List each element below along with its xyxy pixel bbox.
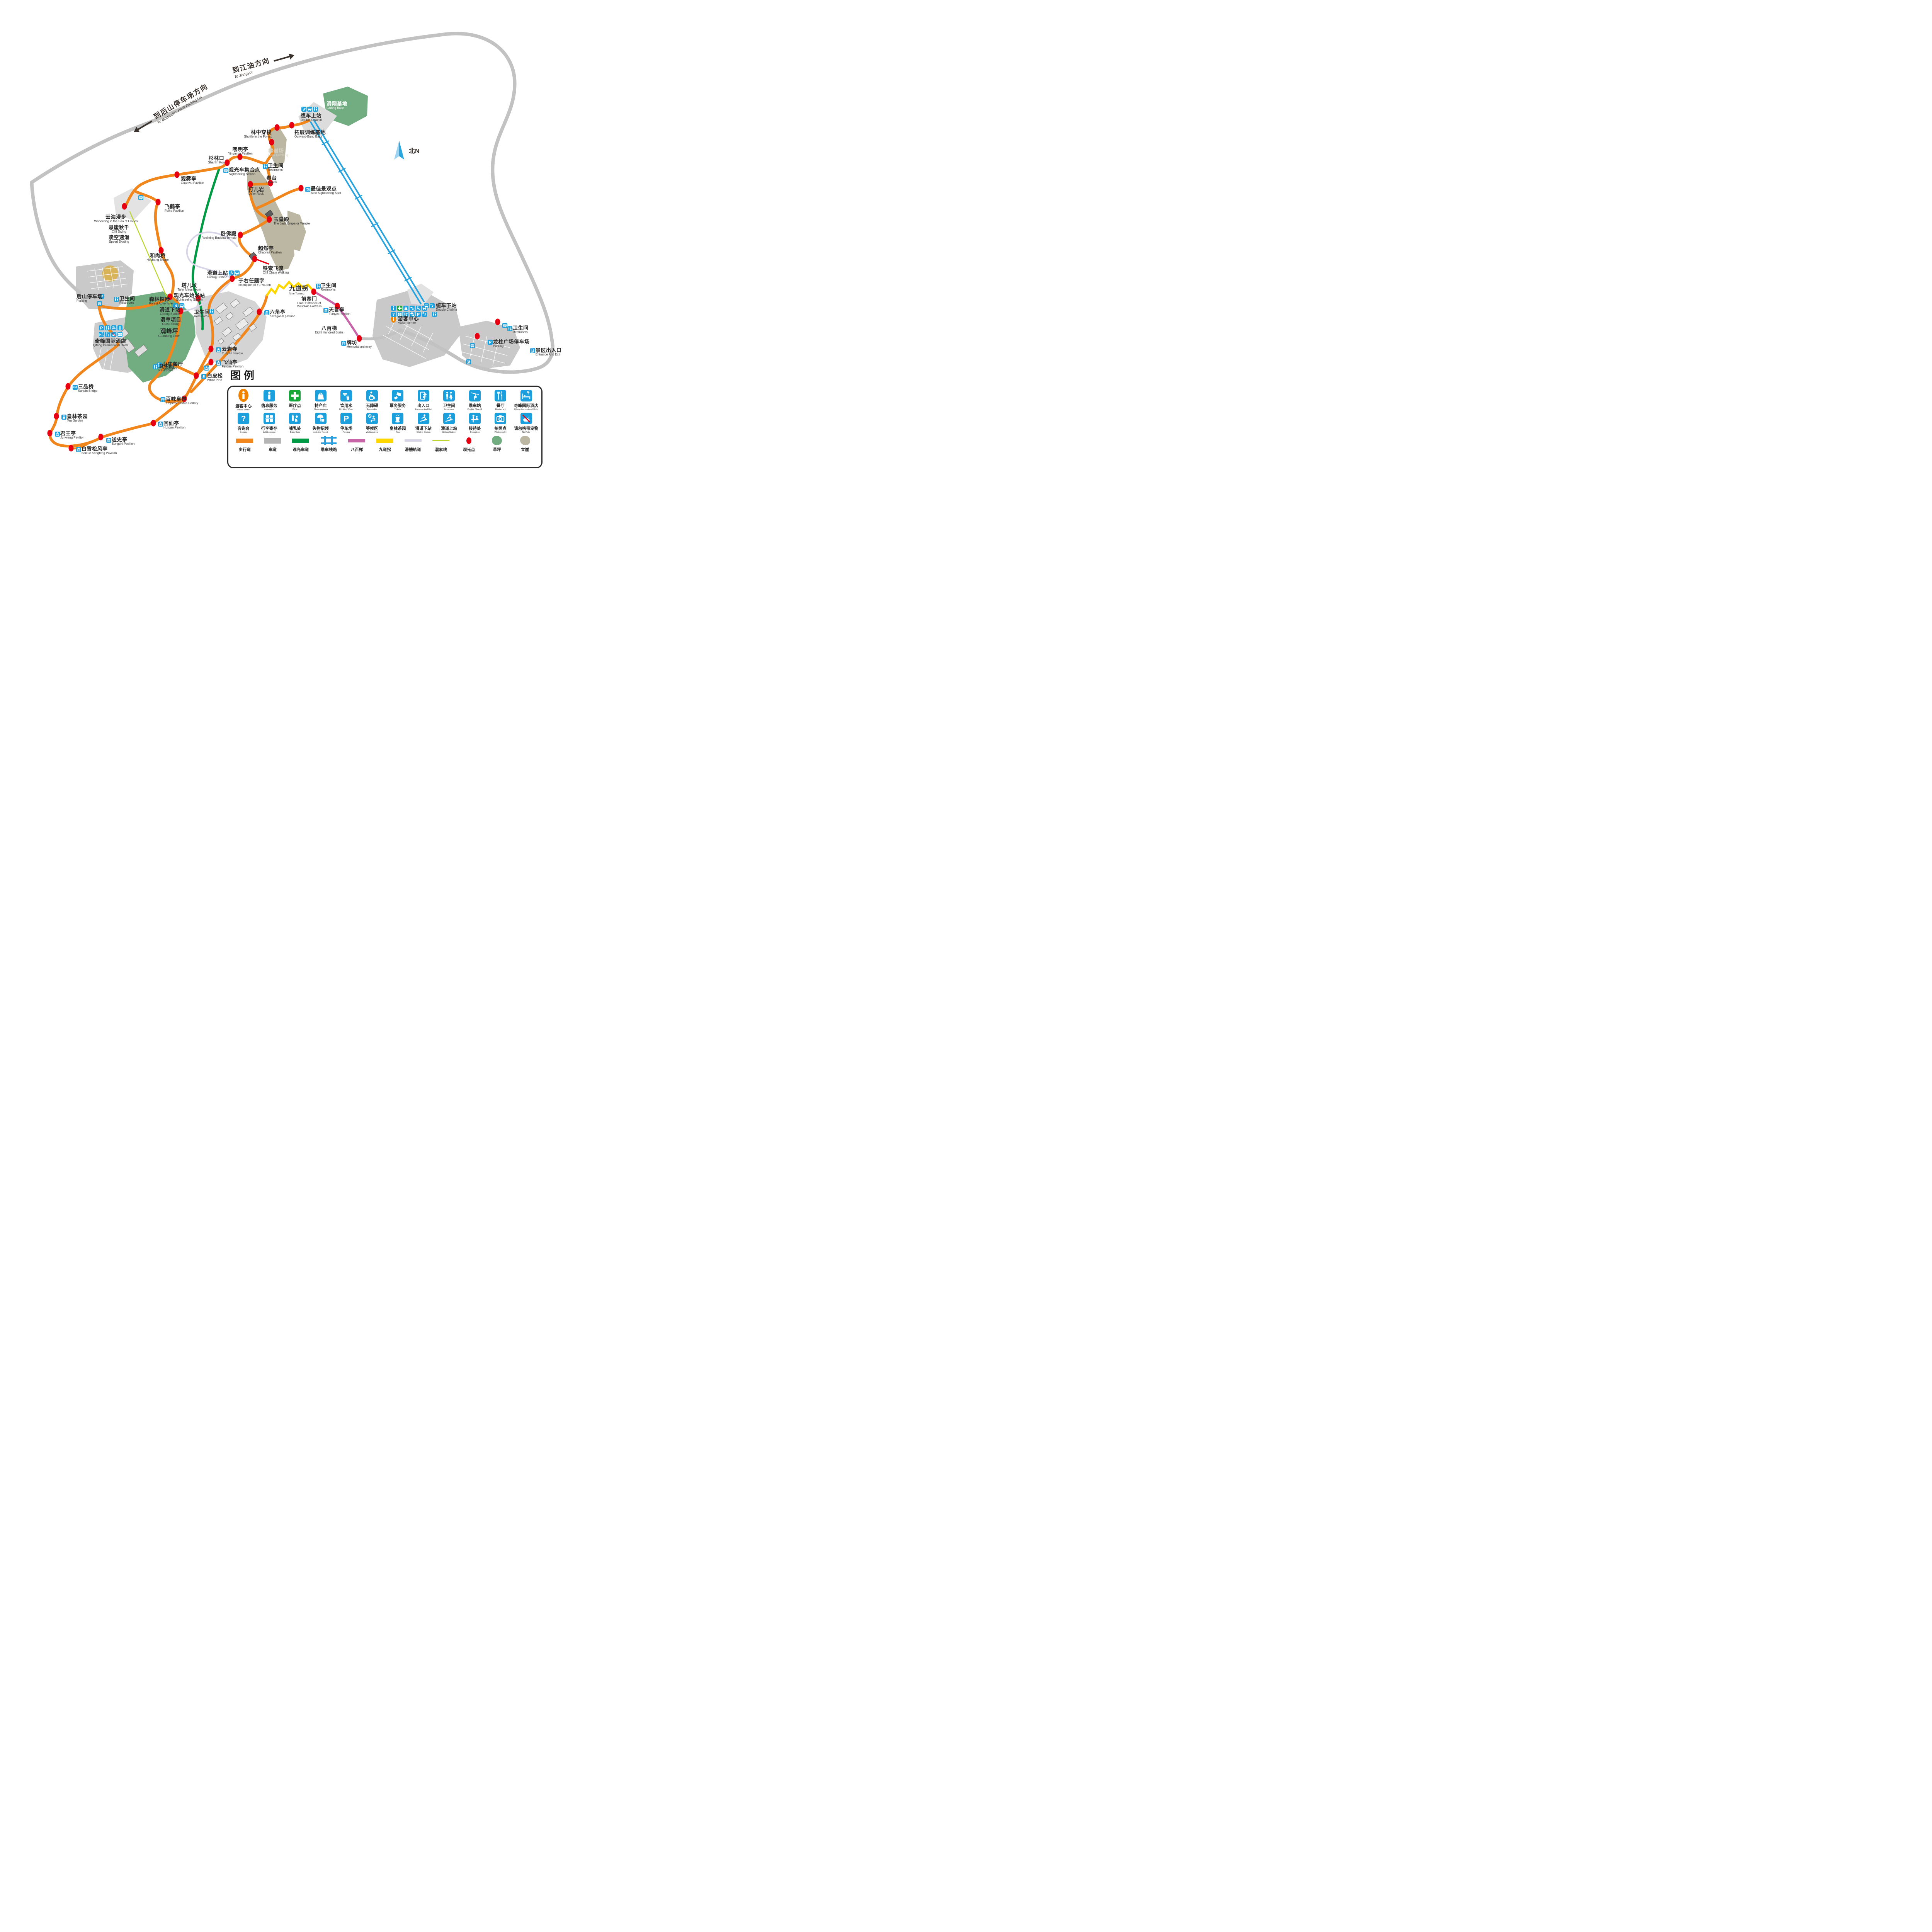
legend-item-tea: 皇林茶园Tea [385, 413, 411, 434]
bus-icon[interactable] [502, 323, 507, 328]
gliding-station-bottom-name-cn: 滑道下站 [160, 307, 180, 313]
legend-label-en: Drinking Water [339, 408, 353, 411]
chairlift-icon[interactable] [301, 107, 306, 112]
heshang-bridge-name-cn: 和尚桥 [146, 253, 168, 259]
legend-item-enquiry: 咨询台Enquiry [231, 413, 257, 434]
nine-swatch [376, 439, 393, 443]
legend-line-label: 观光点 [463, 447, 475, 452]
gliding-station-top-dot[interactable] [230, 276, 235, 282]
cablecar-top-station-name-cn: 缆车上站 [301, 113, 322, 119]
sanpin-bridge-label: 三品桥Sanpin Bridge [78, 384, 97, 393]
visitor-center-name-en: Visitor center [398, 321, 419, 325]
feixian-pavilion-dot[interactable] [209, 359, 214, 366]
lostfound-icon [315, 413, 327, 424]
gliding-base-label: 滑翔基地Gliding Base [327, 101, 347, 110]
restrooms-lawn-label: 卫生间Restrooms [158, 364, 174, 372]
cliff-swatch [520, 436, 530, 445]
legend-item-qifeng-international-hotel: 奇峰国际酒店Qifeng International Hotel [514, 390, 539, 411]
junwang-pavilion-label: 君王亭Junwang Pavilion [60, 431, 84, 439]
wc-icon[interactable] [313, 107, 318, 112]
wc-icon[interactable] [432, 312, 437, 317]
hexagonal-pavilion-name-en: hexagonal pavilion [270, 315, 295, 318]
pavilion-icon[interactable] [264, 310, 269, 315]
scenic-entrance-exit-label: 景区出入口Entrance And Exit [536, 348, 562, 356]
rock-climbing-label: 攀岩场Rock Climbing [268, 148, 288, 157]
legend-item-no-pets: 请勿携带宠物No Pets [514, 413, 539, 434]
best-sightseeing-spot-label: 最佳景观点Best Sightseeing Spot [311, 186, 341, 195]
daer-rock-name-cn: 打儿岩 [248, 187, 264, 192]
bus-icon[interactable] [470, 343, 475, 348]
legend-label-en: Visitor center [237, 409, 250, 411]
restrooms-north-label: 卫生间Restrooms [268, 163, 284, 172]
legend-label-en: Shopping Area [314, 408, 328, 411]
reclining-buddha-temple-dot[interactable] [238, 232, 243, 238]
bed-icon [520, 390, 532, 401]
shuttle-in-the-forest-name-en: Shuttle in the Forest [244, 135, 272, 138]
tianyin-pavilion-name-cn: 天音亭 [329, 307, 350, 313]
qifeng-international-hotel-name-en: Qifeng International Hotel [93, 344, 128, 347]
restrooms-back-mountain-label: 卫生间Restrooms [119, 296, 135, 304]
parking-icon[interactable] [99, 325, 104, 330]
legend-label-en: No Pets [522, 431, 530, 434]
legend-label-en: Accessible [367, 408, 377, 411]
legend-label-en: Tickets [395, 408, 401, 411]
glide-icon [418, 413, 429, 424]
legend-label-en: Waiting Area [366, 431, 378, 434]
bus-icon[interactable] [235, 270, 240, 276]
legend-line-road: 车道 [259, 436, 287, 452]
chuntai-label: 春台Chuntai [266, 175, 277, 184]
cliff-swing-name-en: Cliff Swing [109, 230, 129, 233]
legend-line-label: 观光车道 [293, 447, 309, 452]
legend-label-en: Left Luggage [263, 431, 276, 434]
visitor-center-name-cn: 游客中心 [398, 316, 419, 321]
wc-icon[interactable] [209, 309, 214, 314]
restrooms-yunyan-label: 卫生间Restrooms [194, 310, 210, 318]
legend-item-reception: 接待处Reception [462, 413, 488, 434]
legend-label-cn: 餐厅 [497, 403, 505, 408]
gliding-base-name-cn: 滑翔基地 [327, 101, 347, 107]
speed-skating-name-en: Speed Skating [109, 240, 129, 243]
speed-skating-name-cn: 凌空速滑 [109, 235, 129, 240]
tea-garden-dot[interactable] [54, 413, 59, 420]
restrooms-yunyan-name-en: Restrooms [194, 315, 210, 318]
heshang-bridge-label: 和尚桥Heshang Bridge [146, 253, 168, 262]
legend-item-parking: 停车场Parking [333, 413, 359, 434]
bag-icon[interactable] [403, 306, 408, 311]
road-spot-1-dot[interactable] [495, 319, 500, 325]
restrooms-back-mountain-name-en: Restrooms [119, 301, 135, 304]
reclining-buddha-temple-label: 卧佛殿Reclining Buddha Temple [201, 231, 236, 240]
feihe-pavilion-label: 飞鹤亭Feihe Pavilion [165, 204, 184, 213]
cablecar-top-station-name-en: Double Chairlift [301, 119, 322, 122]
sanpin-bridge-name-en: Sanpin Bridge [78, 389, 97, 393]
junwang-pavilion-dot[interactable] [48, 430, 53, 437]
legend-label-en: Restrooms [444, 408, 454, 411]
legend-service-row-2: 咨询台Enquiry行李寄存Left Luggage哺乳处Baby Care失物… [231, 413, 539, 434]
legend-line-label: 缆车线路 [321, 447, 337, 452]
legend-item-accessible: 无障碍Accessible [359, 390, 385, 411]
jade-emperor-temple-dot[interactable] [267, 216, 272, 223]
water-icon[interactable] [410, 306, 415, 311]
guanwu-pavilion-name-cn: 观雾亭 [181, 176, 204, 182]
memorial-archway-name-cn: 牌坊 [347, 340, 372, 345]
legend-item-visitor-center: 游客中心Visitor center [231, 390, 257, 411]
guanwu-pavilion-name-en: Guanwu Pavilion [181, 182, 204, 185]
legend-line-label: 滑槽轨道 [405, 447, 421, 452]
archway-icon[interactable] [160, 397, 165, 402]
pavilion-icon[interactable] [323, 308, 328, 313]
baixue-songfeng-pavilion-dot[interactable] [69, 445, 74, 452]
grass-skiing-name-cn: 滑草项目 [160, 317, 181, 323]
tea-icon [392, 413, 403, 424]
legend-item-drinking-water: 饮用水Drinking Water [333, 390, 359, 411]
scenic-entrance-exit-name-en: Entrance And Exit [536, 353, 562, 356]
legend-label-cn: 信息服务 [261, 403, 277, 408]
legend-item-information: 信息服务Information [257, 390, 282, 411]
camera-icon[interactable] [305, 187, 310, 192]
gliding-station-top-label: 滑道上站Gliding Station [207, 270, 228, 279]
legend-label-en: Double Chairlift [468, 408, 482, 411]
jade-emperor-temple-label: 玉皇殿The Jade Emperor Temple [274, 217, 310, 225]
guanfeng-lawn-name-cn: 观峰坪 [158, 328, 180, 335]
rock-climbing-name-cn: 攀岩场 [268, 148, 288, 154]
legend-label-cn: 皇林茶园 [389, 425, 406, 431]
road-swatch [264, 438, 281, 444]
qifeng-international-hotel-name-cn: 奇峰国际酒店 [93, 338, 128, 344]
stairs-swatch [348, 439, 365, 442]
legend-label-cn: 特产店 [315, 403, 327, 408]
pavilion-icon[interactable] [158, 422, 163, 427]
legend-label-cn: 停车场 [340, 425, 353, 431]
north-arrow-icon [393, 140, 406, 161]
taer-mausoleum-label: 塔儿坟Ta'er Mausoleum [178, 283, 201, 291]
huixian-pavilion-label: 回仙亭Huixian Pavilion [163, 421, 185, 429]
legend-label-en: Enquiry [240, 431, 247, 434]
sea-of-clouds-walk-name-cn: 云海漫步 [94, 214, 138, 220]
legend-label-en: Reception [470, 431, 480, 434]
inscription-of-yu-youren-label: 于右任题字Inscription of Yu Youren [238, 278, 271, 287]
legend-label-en: Restaurant [495, 408, 506, 411]
legend-item-entrance-and-exit: 出入口Entrance And Exit [411, 390, 437, 411]
wheelchair-icon [366, 390, 378, 401]
restrooms-yunyan-name-cn: 卫生间 [194, 310, 210, 315]
legend-label-cn: 接待处 [469, 425, 481, 431]
cross-icon[interactable] [397, 306, 402, 311]
archway-icon[interactable] [341, 341, 346, 346]
cablecar-bottom-station-name-en: Double Chairlift [436, 308, 457, 311]
legend-label-en: Tea [396, 431, 400, 434]
door-icon[interactable] [530, 348, 535, 353]
door-icon[interactable] [466, 359, 471, 364]
nine-turning-name-en: Nine Turning [289, 293, 308, 295]
legend-item-gliding-station: 滑道下站Gliding Station [411, 413, 437, 434]
chuntai-name-en: Chuntai [266, 181, 277, 184]
legend-label-cn: 缆车站 [469, 403, 481, 408]
wc-icon[interactable] [114, 297, 119, 302]
emperor-statue-gallery-name-cn: 百味皇林 [166, 396, 198, 402]
junwang-pavilion-name-cn: 君王亭 [60, 431, 84, 436]
sanpin-bridge-dot[interactable] [66, 383, 71, 390]
songshi-pavilion-name-cn: 送史亭 [112, 437, 134, 442]
tea-garden-name-cn: 皇林茶园 [67, 414, 88, 419]
grass-skiing-label: 滑草项目Grass Skiing [160, 317, 181, 326]
legend-label-cn: 滑道下站 [415, 425, 432, 431]
legend-line-label: 溜索线 [435, 447, 447, 452]
wc-icon[interactable] [105, 325, 110, 330]
road-spot-2-dot[interactable] [475, 333, 480, 340]
legend-item-restrooms: 卫生间Restrooms [436, 390, 462, 411]
yingming-pavilion-label: 嘤明亭Yingming Pavilion [228, 147, 252, 155]
info-icon [264, 390, 275, 401]
shuttle-in-the-forest-dot[interactable] [275, 124, 280, 131]
legend-line-label: 步行道 [239, 447, 251, 452]
restrooms-lawn-name-cn: 卫生间 [158, 364, 174, 369]
bus-icon[interactable] [424, 303, 429, 308]
legend-line-walk: 步行道 [231, 436, 259, 452]
legend-line-nine: 九道拐 [371, 436, 399, 452]
best-sightseeing-spot-name-cn: 最佳景观点 [311, 186, 341, 192]
legend-label-cn: 票务服务 [389, 403, 406, 408]
waiting-icon[interactable] [422, 312, 427, 317]
shanlin-kou-name-cn: 杉林口 [208, 156, 224, 161]
feihe-pavilion-dot[interactable] [156, 199, 161, 206]
tianyin-pavilion-name-en: Tianyin Pavilion [329, 313, 350, 316]
visitor-icon [238, 389, 248, 402]
info-icon[interactable] [117, 325, 122, 330]
outward-bund-base-dot[interactable] [289, 122, 294, 129]
sightseeing-meeting-point-name-cn: 观光车集合点 [229, 167, 260, 173]
hexagonal-pavilion-name-cn: 六角亭 [270, 310, 295, 315]
guanfeng-lawn-name-en: Guanfeng Lawn [158, 335, 180, 338]
legend-label-cn: 游客中心 [235, 403, 252, 409]
door-icon [418, 390, 429, 401]
restaurant-icon[interactable] [105, 332, 110, 337]
front-entrance-of-mountain-fortress-name-en: Front Entrance of Mountain Fortress [297, 302, 321, 308]
bus-icon[interactable] [307, 107, 312, 112]
pavilion-icon[interactable] [106, 438, 111, 443]
legend-label-en: Baby Care [290, 431, 300, 434]
shanlin-kou-dot[interactable] [225, 160, 230, 166]
waiting-icon [366, 413, 378, 424]
legend-item-double-chairlift: 缆车站Double Chairlift [462, 390, 488, 411]
cliff-chain-walking-name-en: Cliff Chain Walking [263, 271, 289, 274]
tianyin-pavilion-label: 天音亭Tianyin Pavilion [329, 307, 350, 316]
restaurant-icon [495, 390, 506, 401]
legend-line-label: 九道拐 [379, 447, 391, 452]
eight-hundred-stairs-name-en: Eight Hundred Stairs [315, 331, 344, 334]
legend-item-gliding-station: 滑道上站Gliding Station [436, 413, 462, 434]
legend-line-zip: 溜索线 [427, 436, 455, 452]
pavilion-icon[interactable] [55, 432, 60, 437]
legend-item-waiting-area: 等候区Waiting Area [359, 413, 385, 434]
cliff-chain-walking-label: 铁索飞渡Cliff Chain Walking [263, 266, 289, 274]
bus-icon[interactable] [138, 195, 143, 200]
wheelchair-icon[interactable] [416, 306, 421, 311]
right-arrow-icon [274, 55, 290, 61]
sanpin-bridge-name-cn: 三品桥 [78, 384, 97, 389]
gliding-station-bottom-name-en: Gliding Station [160, 313, 180, 316]
songshi-pavilion-dot[interactable] [99, 434, 104, 440]
daer-rock-name-en: Da'er Rock [248, 192, 264, 196]
bridge-icon[interactable] [73, 385, 78, 390]
legend-label-cn: 哺乳处 [289, 425, 301, 431]
sightseeing-departure-station-name-en: Sightseeing Station [173, 298, 205, 301]
forest-adventure-name-en: Forest Adventure [149, 302, 173, 305]
yunyan-temple-dot[interactable] [209, 346, 214, 352]
baixue-songfeng-pavilion-name-cn: 白雪松风亭 [82, 446, 117, 452]
huixian-pavilion-name-cn: 回仙亭 [163, 421, 185, 426]
baixue-songfeng-pavilion-name-en: Baixue Songfeng Pavilion [82, 452, 117, 455]
inscription-of-yu-youren-name-cn: 于右任题字 [238, 278, 271, 284]
cliff-swing-label: 悬崖秋千Cliff Swing [109, 225, 129, 233]
shuttle-in-the-forest-label: 林中穿梭Shuttle in the Forest [244, 130, 272, 138]
best-sightseeing-spot-name-en: Best Sightseeing Spot [311, 192, 341, 195]
taer-mausoleum-name-en: Ta'er Mausoleum [178, 288, 201, 291]
memorial-archway-name-en: Memorial archway [347, 345, 372, 349]
longzhu-square-parking-label: 龙柱广场停车场Parking [493, 339, 530, 348]
yingming-pavilion-name-en: Yingming Pavilion [228, 152, 252, 155]
rock-climbing-name-en: Rock Climbing [268, 154, 288, 157]
legend-label-cn: 请勿携带宠物 [514, 425, 538, 431]
front-entrance-of-mountain-fortress-name-cn: 前寨门 [297, 296, 321, 302]
bag-icon [315, 390, 327, 401]
wc-icon[interactable] [316, 284, 321, 289]
pavilion-icon[interactable] [76, 447, 81, 452]
wc-icon[interactable] [507, 326, 512, 331]
qifeng-international-hotel-label: 奇峰国际酒店Qifeng International Hotel [93, 338, 128, 347]
bed-icon[interactable] [99, 332, 104, 337]
sea-of-clouds-walk-dot[interactable] [122, 203, 127, 210]
parking-icon[interactable] [488, 340, 493, 345]
legend-label-cn: 无障碍 [366, 403, 378, 408]
legend-line-busline: 观光车道 [287, 436, 315, 452]
nine-turning-label: 九道拐Nine Turning [289, 286, 308, 295]
legend-line-label: 车道 [269, 447, 277, 452]
nine-turning-name-cn: 九道拐 [289, 286, 308, 293]
chairlift-icon[interactable] [430, 303, 435, 308]
cable-swatch [321, 437, 337, 444]
white-pine-label: 白皮松White Pine [207, 373, 223, 382]
outward-bund-base-label: 拓展训练基地Outward-Bund Base [294, 130, 326, 138]
guanwu-pavilion-label: 观雾亭Guanwu Pavilion [181, 176, 204, 185]
legend-item-baby-care: 哺乳处Baby Care [282, 413, 308, 434]
lawn-swatch [492, 436, 502, 445]
pine-icon[interactable] [201, 374, 206, 379]
legend-label-en: Photography [495, 431, 507, 434]
cliff-swing-name-cn: 悬崖秋千 [109, 225, 129, 230]
bus-icon[interactable] [223, 168, 228, 173]
pavilion-icon[interactable] [216, 361, 221, 366]
restrooms-nine-turning-label: 卫生间Restrooms [321, 283, 337, 291]
legend-line-cable: 缆车线路 [315, 436, 343, 452]
restrooms-longzhu-name-en: Restrooms [513, 331, 529, 334]
chaoran-pavilion-dot[interactable] [252, 256, 257, 262]
legend-line-stairs: 八百梯 [343, 436, 371, 452]
spot-swatch [466, 437, 471, 444]
chaoran-pavilion-name-cn: 超然亭 [258, 246, 282, 251]
legend-label-cn: 医疗点 [289, 403, 301, 408]
camera-icon[interactable] [204, 366, 209, 371]
guanwu-pavilion-dot[interactable] [175, 172, 180, 178]
yingming-pavilion-name-cn: 嘤明亭 [228, 147, 252, 152]
gliding-station-top-name-en: Gliding Station [207, 276, 228, 279]
wc-icon[interactable] [153, 364, 158, 369]
chairlift-icon [469, 390, 481, 401]
nopets-icon [520, 413, 532, 424]
compass: 北N [393, 140, 420, 161]
legend-title: 图例 [230, 367, 257, 382]
songshi-pavilion-name-en: Songshi Pavilion [112, 442, 134, 446]
chute-swatch [405, 439, 422, 442]
restrooms-back-mountain-name-cn: 卫生间 [119, 296, 135, 301]
sea-of-clouds-walk-name-en: Wondering in the Sea of Clouds [94, 220, 138, 223]
back-mountain-parking-name-cn: 后山停车场 [77, 294, 103, 299]
restrooms-longzhu-name-cn: 卫生间 [513, 325, 529, 331]
info-icon[interactable] [391, 306, 396, 311]
legend-label-cn: 奇峰国际酒店 [514, 403, 538, 408]
legend-label-en: Gliding Station [442, 431, 456, 434]
sightseeing-meeting-point-label: 观光车集合点Sightseeing Station [229, 167, 260, 176]
legend-line-label: 草坪 [493, 447, 501, 452]
restrooms-nine-turning-name-en: Restrooms [321, 288, 337, 291]
zip-swatch [432, 440, 449, 441]
rock-climbing-dot[interactable] [269, 139, 274, 146]
tea-icon[interactable] [61, 415, 66, 420]
best-sightseeing-spot-dot[interactable] [299, 185, 304, 192]
question-icon[interactable] [391, 312, 396, 317]
legend-line-label: 立崖 [521, 447, 529, 452]
shanlin-kou-label: 杉林口Shanlin Kou [208, 156, 224, 164]
longzhu-square-parking-name-cn: 龙柱广场停车场 [493, 339, 530, 345]
camera-icon [495, 413, 506, 424]
huixian-pavilion-dot[interactable] [151, 420, 156, 427]
temple-icon[interactable] [216, 347, 221, 352]
hexagonal-pavilion-dot[interactable] [257, 309, 262, 315]
legend-label-cn: 滑道上站 [441, 425, 457, 431]
water-icon [340, 390, 352, 401]
glide-icon[interactable] [229, 270, 234, 276]
legend-line-spot: 观光点 [455, 436, 483, 452]
tea-garden-name-en: Tea Garden [67, 419, 88, 422]
legend-label-en: Gliding Station [417, 431, 430, 434]
wc-icon[interactable] [263, 164, 268, 169]
legend-label-cn: 拍照点 [495, 425, 507, 431]
legend-label-cn: 等候区 [366, 425, 378, 431]
feihe-pavilion-name-en: Feihe Pavilion [165, 209, 184, 213]
legend-label-en: Qifeng International Hotel [514, 408, 538, 411]
baixue-songfeng-pavilion-label: 白雪松风亭Baixue Songfeng Pavilion [82, 446, 117, 455]
restrooms-nine-turning-name-cn: 卫生间 [321, 283, 337, 288]
sightseeing-departure-station-name-cn: 观光车始发站 [173, 293, 205, 298]
luggage-icon[interactable] [117, 332, 122, 337]
bus-icon[interactable] [97, 301, 102, 306]
white-pine-dot[interactable] [194, 372, 199, 379]
feihe-pavilion-name-cn: 飞鹤亭 [165, 204, 184, 209]
yunyan-temple-name-cn: 云岩寺 [222, 347, 243, 352]
legend-line-label: 八百梯 [351, 447, 363, 452]
legend-item-lost-and-found: 失物招领Lost And Found [308, 413, 334, 434]
legend-item-tickets: 票务服务Tickets [385, 390, 411, 411]
nopets-icon[interactable] [111, 332, 116, 337]
yunyan-temple-label: 云岩寺Yunyan Temple [222, 347, 243, 355]
restrooms-nine-turning-dot[interactable] [311, 289, 316, 295]
white-pine-name-cn: 白皮松 [207, 373, 223, 379]
legend-label-cn: 失物招领 [313, 425, 329, 431]
gliding-station-bottom-label: 滑道下站Gliding Station [160, 307, 180, 316]
reception-icon[interactable] [111, 325, 116, 330]
baby-icon [289, 413, 301, 424]
